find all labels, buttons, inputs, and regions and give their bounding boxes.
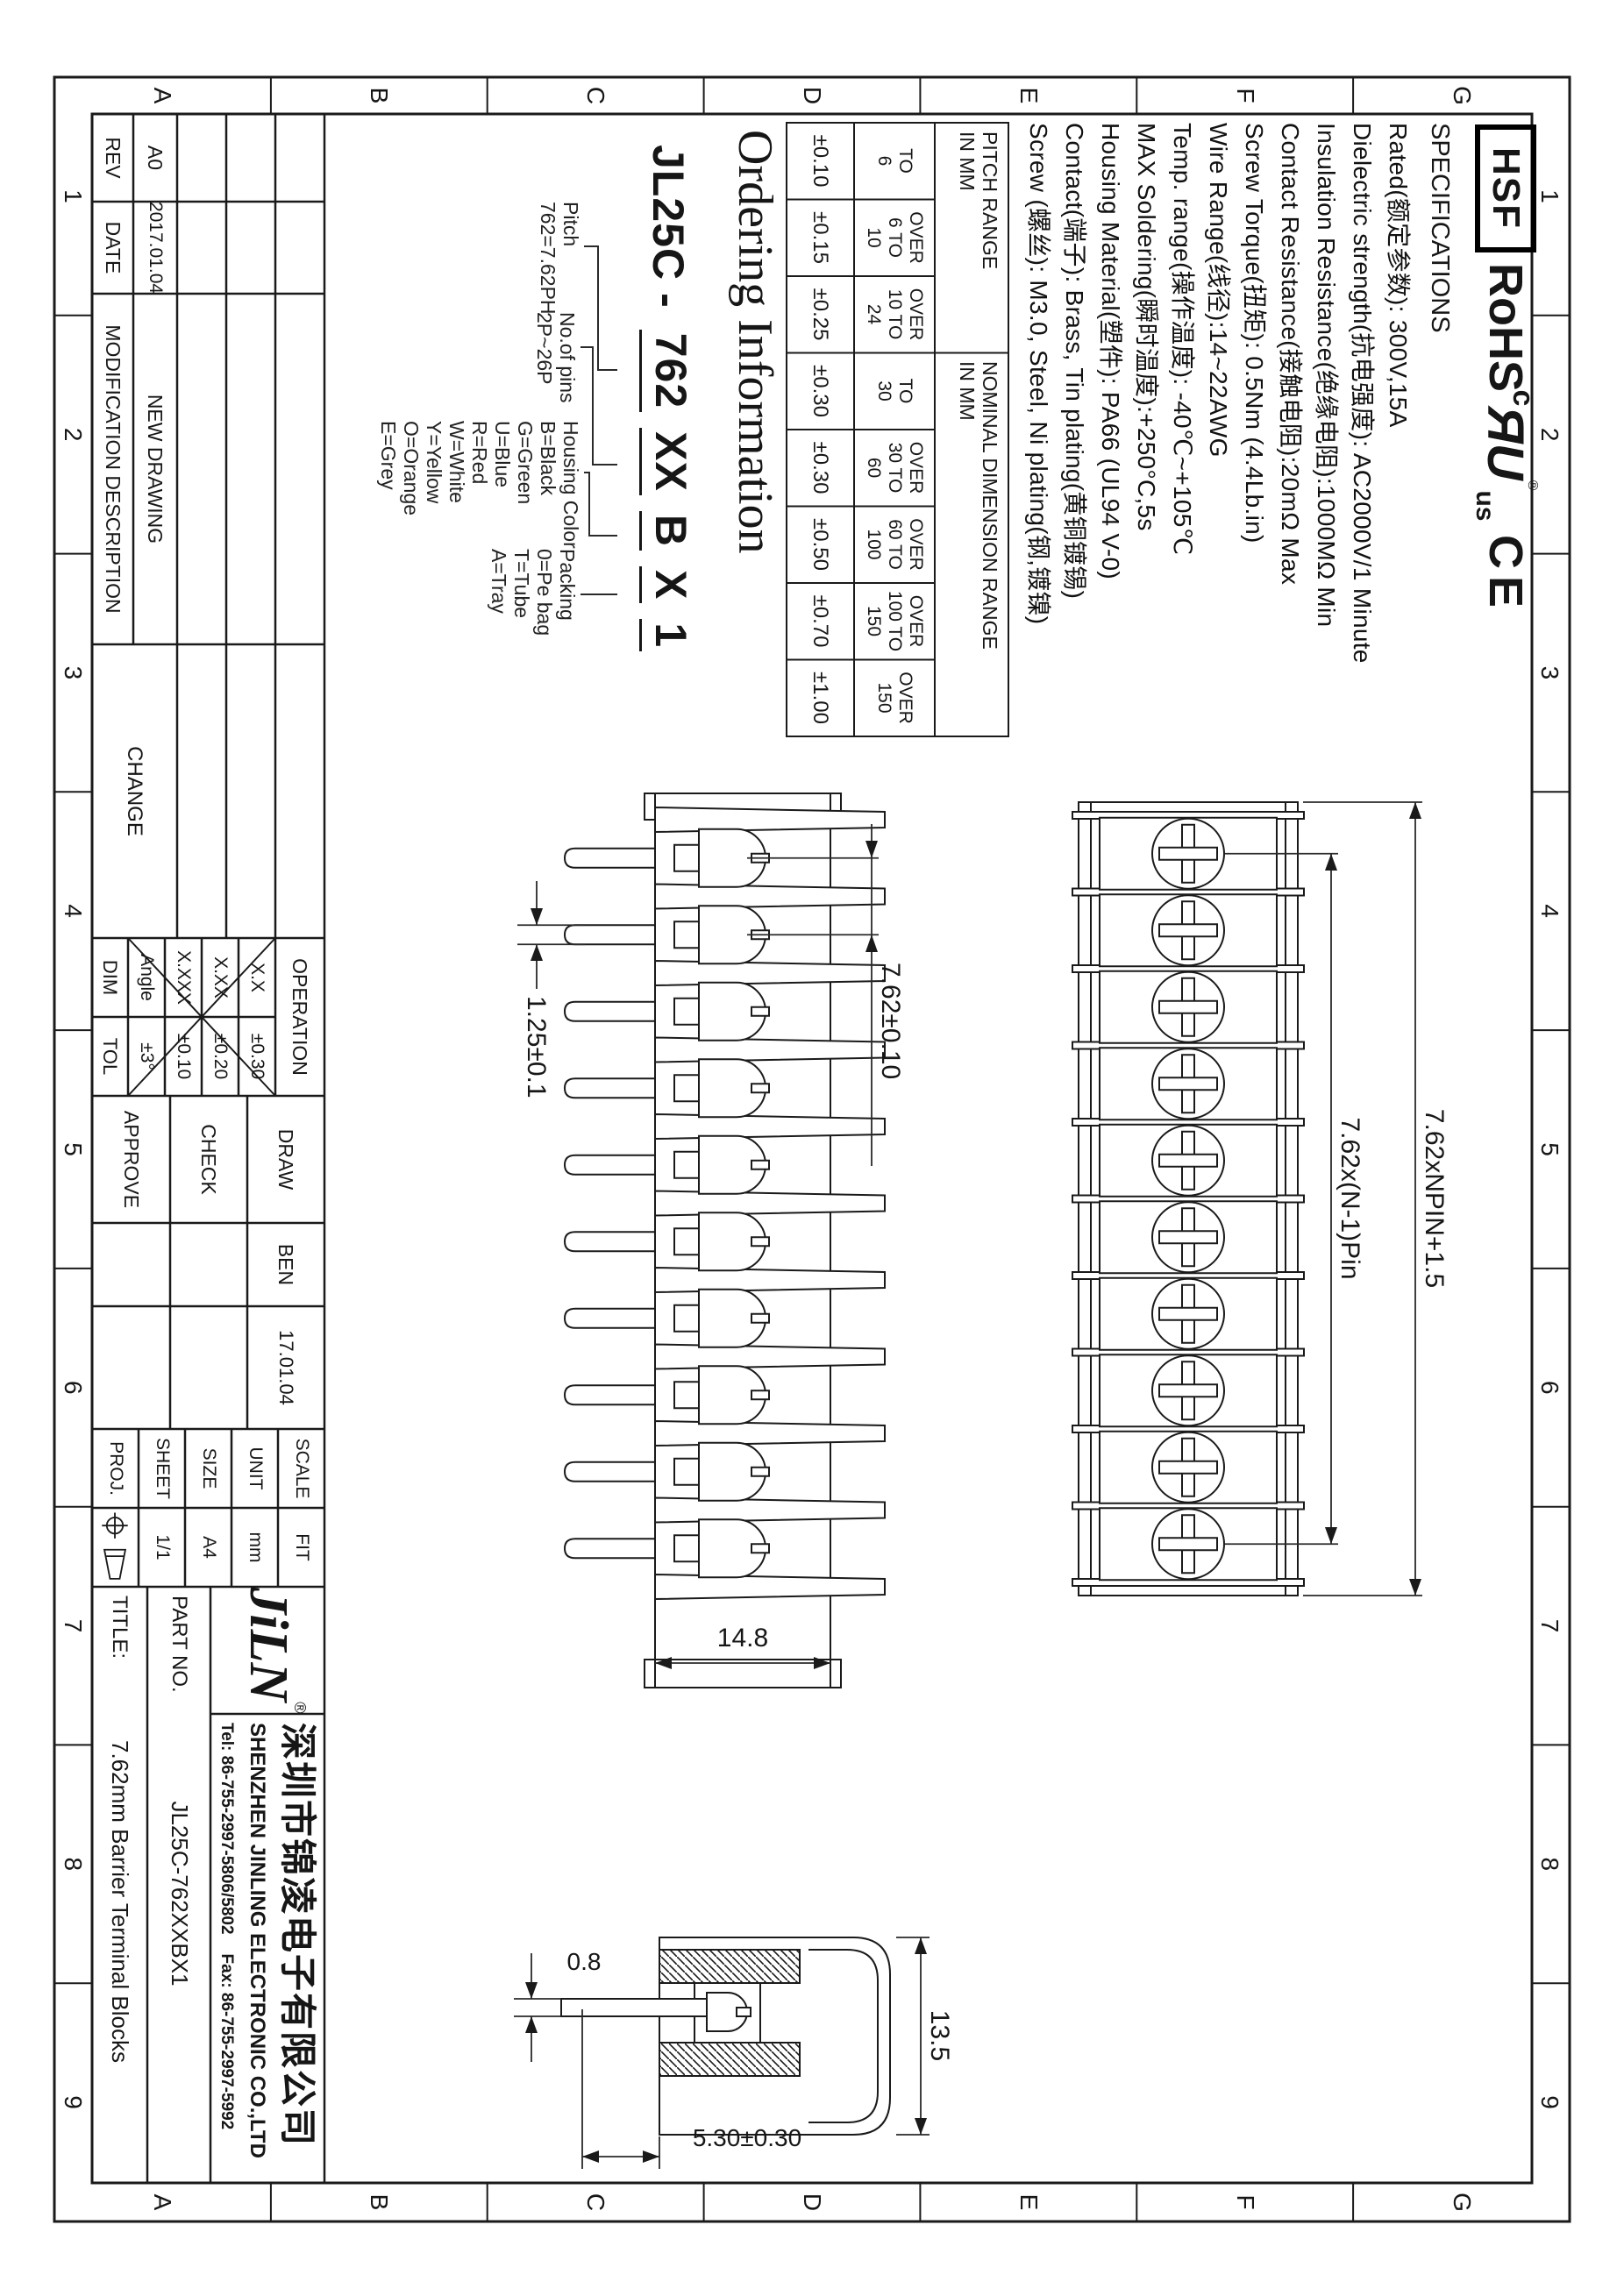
check-label: CHECK <box>170 1096 247 1223</box>
zone-number: 5 <box>1536 1142 1563 1156</box>
zone-letter: C <box>582 2193 609 2211</box>
group-line: T=Tube <box>510 549 533 636</box>
ordering-group-pins: No.of pins 2P~26P <box>533 312 579 403</box>
code-segment-pitch: 762 <box>639 330 696 412</box>
sheet-label: SHEET <box>139 1429 185 1508</box>
ul-c: c <box>1506 390 1540 407</box>
title-value: 7.62mm Barrier Terminal Blocks <box>92 1740 147 2152</box>
unit-value: mm <box>231 1508 278 1587</box>
group-line: G=Green <box>514 421 537 549</box>
company-name-cn: 深圳市锦凌电子有限公司 <box>274 1723 320 2179</box>
draw-name: BEN <box>247 1223 324 1306</box>
range-cell: OVER 30 TO 60 <box>854 430 935 506</box>
range-cell: TO 6 <box>854 123 935 199</box>
tolerance-cell: ±0.15 <box>787 200 854 276</box>
title-label: TITLE: <box>92 1596 147 1701</box>
code-segment-suffix: 1 <box>639 619 696 651</box>
dim-height: 13.5 <box>925 2010 954 2061</box>
projection-symbol <box>92 1508 139 1587</box>
group-title: Packing <box>556 549 579 636</box>
dim-body-width: 14.8 <box>717 1624 768 1653</box>
code-prefix: JL25C <box>642 145 693 281</box>
zone-number: 2 <box>60 428 87 442</box>
specs-list: Rated(额定参数): 300V,15A Dielectric strengt… <box>1022 123 1417 1043</box>
zone-number: 3 <box>60 666 87 680</box>
group-line: 2P~26P <box>533 312 556 403</box>
section-view <box>561 1937 890 2135</box>
company-name-en: SHENZHEN JINLING ELECTRONIC CO.,LTD <box>242 1723 272 2183</box>
ordering-group-color: Housing Color B=Black G=Green U=Blue R=R… <box>377 421 582 549</box>
specs-title: SPECIFICATIONS <box>1422 123 1456 736</box>
tolerance-cell: ±0.10 <box>787 123 854 199</box>
pitch-range-header: PITCH RANGE IN MM <box>940 132 1001 346</box>
zone-letter: E <box>1015 88 1043 104</box>
group-line: 762=7.62PH <box>537 202 559 315</box>
dim-pin-thickness: 0.8 <box>567 1948 602 1975</box>
rev-value: A0 <box>133 114 177 202</box>
zone-letter: B <box>366 2194 393 2211</box>
tolerance-cell: ±0.50 <box>787 507 854 583</box>
date-value: 2017.01.04 <box>133 202 177 294</box>
range-cell: OVER 150 <box>854 660 935 736</box>
tol-dim-cell: Angle <box>128 938 165 1017</box>
code-segment-pins: XX <box>639 428 696 495</box>
hsf-logo: HSF <box>1475 124 1536 252</box>
zone-number: 5 <box>60 1142 87 1156</box>
code-segment-packing: X <box>639 566 696 603</box>
spec-line: Dielectric strength(抗电强度): AC2000V/1 Min… <box>1345 123 1381 1043</box>
ul-mark: ЯU <box>1476 406 1535 480</box>
modification-description-label: MODIFICATION DESCRIPTION <box>92 294 133 644</box>
spec-line: Screw (螺丝): M3.0, Steel, Ni plating(钢,镀镍… <box>1022 123 1058 1043</box>
group-line: 0=Pe bag <box>533 549 556 636</box>
group-title: Housing Color <box>559 421 582 549</box>
tol-val-cell: ±0.10 <box>165 1017 202 1096</box>
company-tel: Tel: 86-755-2997-5806/5802 <box>217 1723 236 1935</box>
draw-label: DRAW <box>247 1096 324 1223</box>
tol-val-cell: ±0.20 <box>202 1017 239 1096</box>
spec-line: Screw Torque(扭矩): 0.5Nm (4.4Lb.in) <box>1237 123 1273 1043</box>
tolerance-cell: ±1.00 <box>787 660 854 736</box>
change-label: CHANGE <box>92 644 177 938</box>
scale-label: SCALE <box>278 1429 324 1508</box>
spec-line: Rated(额定参数): 300V,15A <box>1381 123 1417 1043</box>
dim-span-inner: 7.62x(N-1)Pin <box>1336 1117 1364 1279</box>
tolerance-cell: ±0.30 <box>787 353 854 430</box>
zone-number: 6 <box>60 1381 87 1395</box>
group-title: No.of pins <box>556 312 579 403</box>
company-contact: Tel: 86-755-2997-5806/5802 Fax: 86-755-2… <box>214 1723 239 2183</box>
group-line: R=Red <box>468 421 491 549</box>
projection-label: PROJ. <box>92 1429 139 1508</box>
tolerance-cell: ±0.30 <box>787 430 854 506</box>
range-cell: OVER 100 TO 150 <box>854 583 935 659</box>
range-cell: OVER 10 TO 24 <box>854 276 935 352</box>
zone-number: 9 <box>60 2095 87 2109</box>
sheet-value: 1/1 <box>139 1508 185 1587</box>
zone-letter: A <box>149 88 176 104</box>
tolerance-cell: ±0.25 <box>787 276 854 352</box>
zone-letter: D <box>799 2193 826 2211</box>
zone-number: 8 <box>1536 1858 1563 1872</box>
company-logo-registered: ® <box>290 1702 309 1713</box>
zone-letter: E <box>1015 2194 1043 2211</box>
range-cell: TO 30 <box>854 353 935 430</box>
ul-us: us <box>1470 490 1500 521</box>
zone-number: 4 <box>1536 904 1563 918</box>
group-line: Y=Yellow <box>423 421 445 549</box>
zone-letter: B <box>366 88 393 104</box>
ordering-heading: Ordering Information <box>726 130 784 743</box>
zone-number: 2 <box>1536 428 1563 442</box>
rohs-logo: RoHS <box>1475 259 1536 395</box>
zone-letter: C <box>582 87 609 104</box>
company-logo-text: JiLN <box>236 1587 298 1702</box>
zone-number: 8 <box>60 1858 87 1872</box>
spec-line: Housing Material(塑件): PA66 (UL94 V-0) <box>1093 123 1129 1043</box>
ordering-leaders <box>581 246 617 594</box>
zone-letter: F <box>1232 2194 1259 2209</box>
zone-letter: G <box>1449 86 1476 105</box>
approve-label: APPROVE <box>92 1096 170 1223</box>
nominal-range-header: NOMINAL DIMENSION RANGE IN MM <box>940 361 1001 729</box>
zone-number: 6 <box>1536 1381 1563 1395</box>
operation-header: OPERATION <box>275 938 324 1096</box>
range-cell: OVER 60 TO 100 <box>854 507 935 583</box>
spec-line: Insulation Resistance(绝缘电阻):1000MΩ Min <box>1309 123 1345 1043</box>
dim-pin-width: 1.25±0.1 <box>522 996 551 1098</box>
tol-val-cell: ±3° <box>128 1017 165 1096</box>
spec-line: Contact(端子): Brass, Tin plating(黄铜镀锡) <box>1058 123 1093 1043</box>
spec-line: Temp. range(操作温度): -40℃~+105℃ <box>1165 123 1201 1043</box>
zone-letter: G <box>1449 2193 1476 2212</box>
zone-number: 4 <box>60 904 87 918</box>
tol-dim-cell: X.XX <box>202 938 239 1017</box>
unit-label: UNIT <box>231 1429 278 1508</box>
ul-registered: ® <box>1524 480 1540 491</box>
tol-label: TOL <box>92 1017 128 1096</box>
group-line: A=Tray <box>488 549 510 636</box>
zone-letter: D <box>799 87 826 104</box>
part-no-value: JL25C-762XXBX1 <box>147 1753 210 2034</box>
spec-line: Contact Resistance(接触电阻):20mΩ Max <box>1273 123 1309 1043</box>
zone-number: 1 <box>1536 189 1563 203</box>
ordering-group-packing: Packing 0=Pe bag T=Tube A=Tray <box>488 549 579 636</box>
zone-number: 7 <box>60 1619 87 1633</box>
group-title: Pitch <box>559 202 582 315</box>
zone-letter: A <box>149 2194 176 2211</box>
dim-pin-offset: 5.30±0.30 <box>693 2124 801 2151</box>
dim-label: DIM <box>92 938 128 1017</box>
size-label: SIZE <box>185 1429 231 1508</box>
ordering-code: JL25C - 762 XX B X 1 <box>633 145 702 846</box>
ul-logo: c ЯU ® us <box>1470 396 1540 515</box>
modification-description-value: NEW DRAWING <box>133 294 177 644</box>
zone-number: 1 <box>60 189 87 203</box>
zone-number: 7 <box>1536 1619 1563 1633</box>
range-cell: OVER 6 TO 10 <box>854 200 935 276</box>
ce-logo: CE <box>1475 524 1536 625</box>
size-value: A4 <box>185 1508 231 1587</box>
scale-value: FIT <box>278 1508 324 1587</box>
rev-label: REV <box>92 114 133 202</box>
company-fax: Fax: 86-755-2997-5992 <box>217 1954 236 2130</box>
drawing-sheet: A B C D E F G A B C D E F G 1 2 3 4 5 6 … <box>0 0 1624 2296</box>
dim-span-outer: 7.62xNPIN+1.5 <box>1420 1109 1449 1288</box>
ordering-group-pitch: Pitch 762=7.62PH <box>537 202 582 315</box>
zone-number: 3 <box>1536 666 1563 680</box>
spec-line: Wire Range(线径):14~22AWG <box>1201 123 1237 1043</box>
company-logo: JiLN ® <box>210 1587 324 1714</box>
tol-dim-cell: X.XXX <box>165 938 202 1017</box>
tolerance-cell: ±0.70 <box>787 583 854 659</box>
code-dash: - <box>642 293 693 309</box>
group-line: O=Orange <box>400 421 423 549</box>
tol-val-cell: ±0.30 <box>239 1017 275 1096</box>
code-segment-color: B <box>639 511 696 551</box>
side-view-cells <box>565 807 885 1599</box>
draw-date: 17.01.04 <box>247 1306 324 1429</box>
dim-pitch: 7.62±0.10 <box>876 963 905 1079</box>
part-no-label: PART NO. <box>147 1596 210 1753</box>
group-line: W=White <box>445 421 468 549</box>
group-line: U=Blue <box>491 421 514 549</box>
zone-letter: F <box>1232 88 1259 103</box>
date-label: DATE <box>92 202 133 294</box>
group-line: B=Black <box>537 421 559 549</box>
spec-line: MAX Soldering(瞬时温度):+250°C,5s <box>1129 123 1165 1043</box>
group-line: E=Grey <box>377 421 400 549</box>
tol-dim-cell: X.X <box>239 938 275 1017</box>
zone-number: 9 <box>1536 2095 1563 2109</box>
